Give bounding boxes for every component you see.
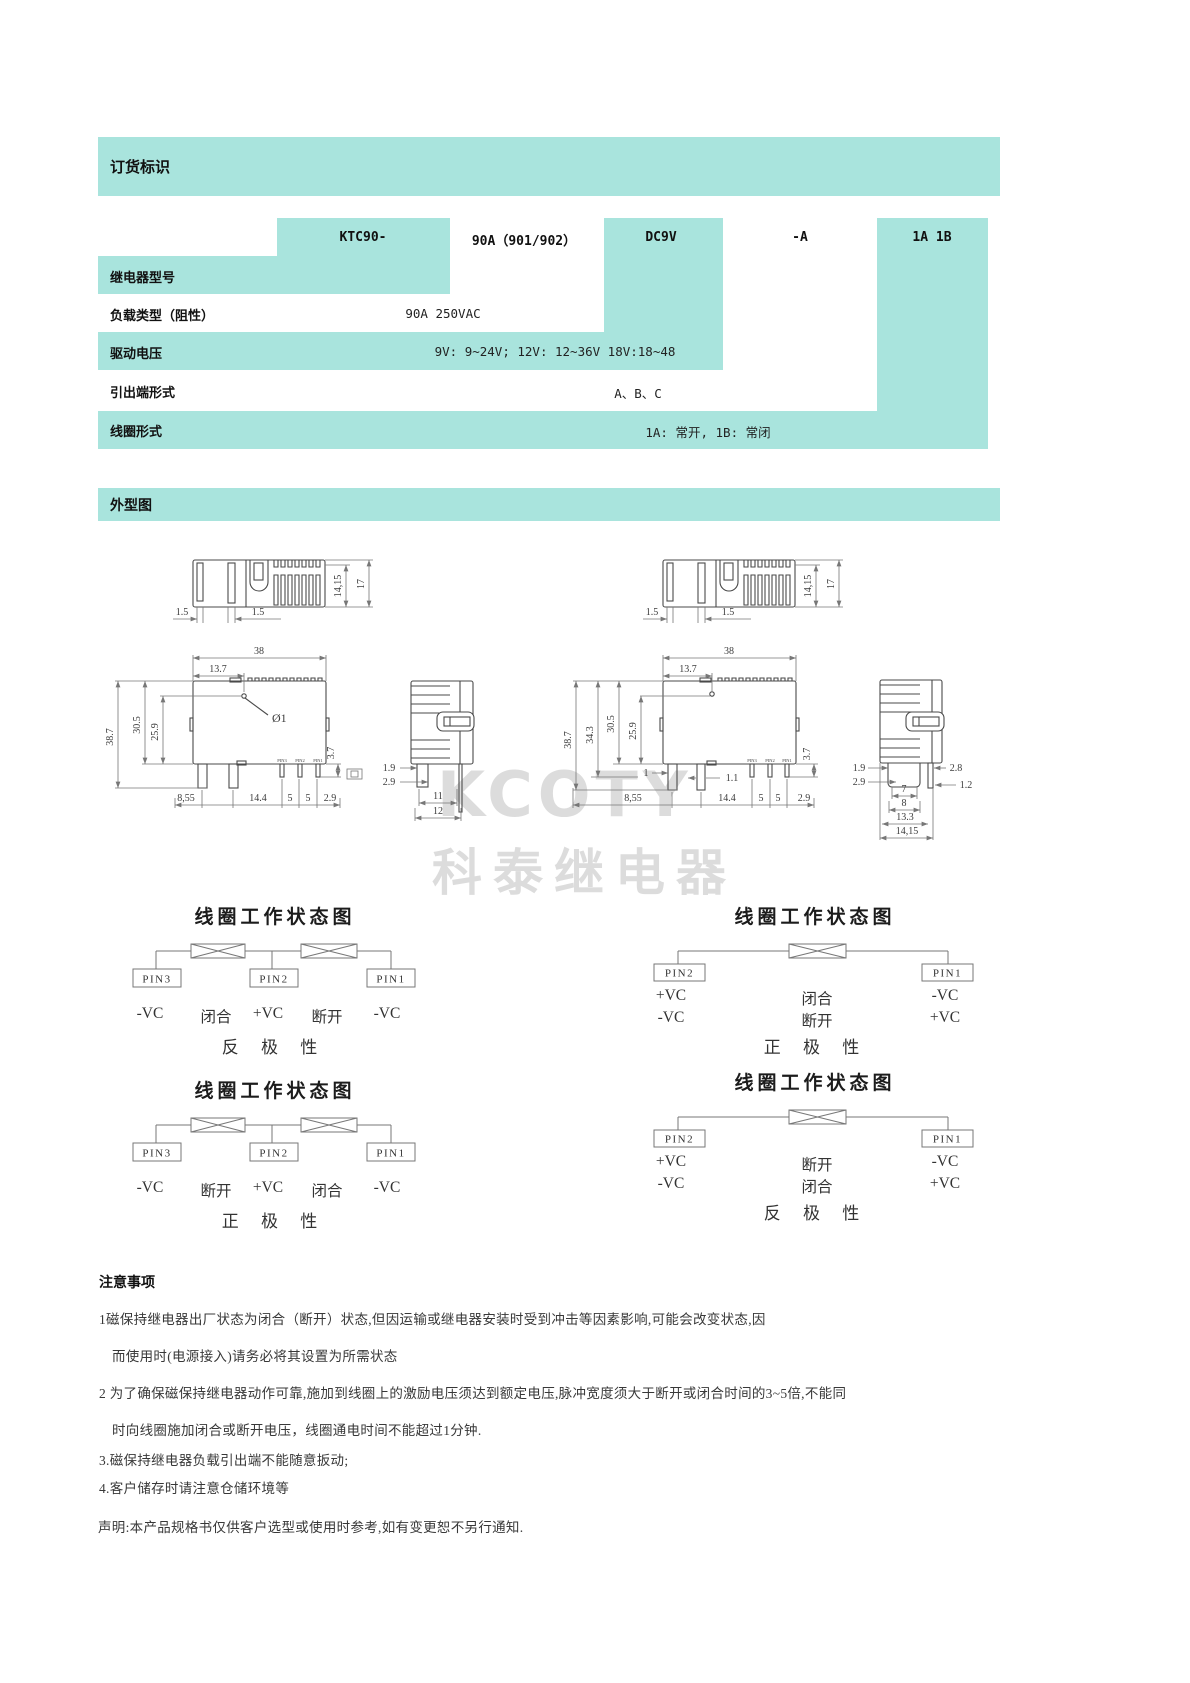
vc-label: +VC [930,1009,960,1027]
dim-lf-hole: Ø1 [272,711,287,725]
pin2-label: PIN2 [295,758,305,763]
vc-label: +VC [253,1179,283,1197]
dim-lf-b5: 2.9 [324,793,337,804]
pin-box-label: PIN2 [665,1134,694,1146]
dim-lf-b4: 5 [306,793,311,804]
note-line: 1磁保持继电器出厂状态为闭合（断开）状态,但因运输或继电器安装时受到冲击等因素影… [99,1308,766,1328]
row-label-coil: 线圈形式 [110,421,162,440]
vc-label: -VC [374,1179,401,1197]
row-value-terminal: A、B、C [614,383,662,402]
vc-label: -VC [137,1179,164,1197]
row-value-coil: 1A: 常开, 1B: 常闭 [645,422,770,441]
dim-rs-d1: 1.9 [853,763,866,774]
pin-box-label: PIN2 [259,1148,288,1160]
outline-title: 外型图 [110,495,152,515]
dim-rs-d4: 1.2 [960,780,973,791]
dim-rs-b2: 8 [902,798,907,809]
dim-lf-v2: 30.5 [132,716,143,734]
row-label-load: 负载类型（阻性） [110,305,214,324]
vc-label: -VC [658,1009,685,1027]
row-value-drive: 9V: 9~24V; 12V: 12~36V 18V:18~48 [435,344,676,359]
coil-diagram-2: 线圈工作状态图 PIN2 PIN1 +VC 闭合 -VC -VC 断开 +VC … [640,902,990,1060]
dim-lf-width: 38 [254,646,264,657]
pin-box-label: PIN3 [142,1148,171,1160]
state-label: 断开 [311,1005,342,1027]
note-line: 时向线圈施加闭合或断开电压，线圈通电时间不能超过1分钟. [112,1419,482,1439]
vc-label: +VC [656,987,686,1005]
state-label: 闭合 [200,1005,231,1027]
dim-ls-d1: 1.9 [383,763,396,774]
coil-circuit-3: PIN3 PIN2 PIN1 [120,1114,430,1166]
dim-lf-r1: 3.7 [326,747,337,760]
vc-label: -VC [932,987,959,1005]
coil-diagram-1-title: 线圈工作状态图 [120,902,430,929]
dim-rf-width: 38 [724,646,734,657]
row-label-terminal: 引出端形式 [110,382,175,401]
ordering-title: 订货标识 [110,156,170,177]
polarity-label: 反 极 性 [222,1033,327,1058]
datasheet-page: 订货标识 KTC90- 90A（901/902） DC9V -A 1A 1B 继… [0,0,1190,1683]
dim-rt-slot1: 1.5 [646,607,659,618]
pin1-label-right: PIN1 [782,758,792,763]
note-disclaimer: 声明:本产品规格书仅供客户选型或使用时参考,如有变更恕不另行通知. [98,1516,523,1536]
pin3-label-right: PIN3 [747,758,757,763]
coil-diagram-2-title: 线圈工作状态图 [640,902,990,929]
coil-circuit-4: PIN2 PIN1 [640,1106,990,1158]
col-coilform-band [877,218,988,411]
note-line: 而使用时(电源接入)请务必将其设置为所需状态 [112,1345,398,1365]
row-value-load: 90A 250VAC [405,306,480,321]
row-coil-band [98,411,988,449]
dim-rs-b4: 14,15 [896,826,919,837]
coil-diagram-3: 线圈工作状态图 PIN3 PIN2 PIN1 -VC 断开 +VC 闭合 -VC… [120,1076,430,1234]
coil-diagram-3-title: 线圈工作状态图 [120,1076,430,1103]
dim-rf-b5: 2.9 [798,793,811,804]
dim-rs-d3: 2.8 [950,763,963,774]
pin-box-label: PIN1 [933,1134,962,1146]
row-label-model: 继电器型号 [110,267,175,286]
pin3-label: PIN3 [277,758,287,763]
coil-diagram-4-title: 线圈工作状态图 [640,1068,990,1095]
dim-lt-slot1: 1.5 [176,607,189,618]
dim-rs-b3: 13.3 [896,812,914,823]
vc-label: -VC [658,1175,685,1193]
dim-rf-r1: 3.7 [802,748,813,761]
pin1-label: PIN1 [313,758,323,763]
state-label: 断开 [200,1179,231,1201]
note-line: 4.客户储存时请注意仓储环境等 [99,1477,289,1497]
dim-rf-v2: 34.3 [585,726,596,744]
state-label: 闭合 [311,1179,342,1201]
dim-rf-i1: 1 [644,768,649,779]
dim-rf-b4: 5 [776,793,781,804]
code-coilform: 1A 1B [912,230,951,245]
state-label: 断开 [801,1009,832,1031]
dim-lf-b1: 8,55 [177,793,195,804]
pin-box-label: PIN2 [665,968,694,980]
pin-box-label: PIN1 [376,1148,405,1160]
dim-rf-i2: 1.1 [726,773,739,784]
code-terminal: -A [792,230,808,245]
polarity-label: 反 极 性 [764,1199,869,1224]
dim-lf-holex: 13.7 [209,664,227,675]
pin2-label-right: PIN2 [765,758,775,763]
vc-label: +VC [253,1005,283,1023]
dim-rs-d2: 2.9 [853,777,866,788]
dim-rt-width: 14,15 [803,575,814,598]
vc-label: +VC [930,1175,960,1193]
dim-lf-b3: 5 [288,793,293,804]
dim-rf-holex: 13.7 [679,664,697,675]
code-load: 90A（901/902） [472,230,576,249]
dim-rf-b3: 5 [759,793,764,804]
dim-rf-v1: 38.7 [563,731,574,749]
vc-label: +VC [656,1153,686,1171]
state-label: 闭合 [801,987,832,1009]
code-series: KTC90- [340,230,387,245]
dim-ls-b2: 12 [433,806,443,817]
dim-ls-d2: 2.9 [383,777,396,788]
notes-title: 注意事项 [99,1272,155,1292]
dim-rt-slot2: 1.5 [722,607,735,618]
vc-label: -VC [374,1005,401,1023]
dim-lf-b2: 14.4 [249,793,267,804]
note-line: 3.磁保持继电器负载引出端不能随意扳动; [99,1449,348,1469]
dim-rf-b2: 14.4 [718,793,736,804]
dim-lf-v1: 38.7 [105,728,116,746]
polarity-label: 正 极 性 [222,1207,327,1232]
state-label: 闭合 [801,1175,832,1197]
row-label-drive: 驱动电压 [110,343,162,362]
dim-lf-v3: 25.9 [150,723,161,741]
pin-box-label: PIN3 [142,974,171,986]
vc-label: -VC [932,1153,959,1171]
polarity-label: 正 极 性 [764,1033,869,1058]
state-label: 断开 [801,1153,832,1175]
coil-diagram-4: 线圈工作状态图 PIN2 PIN1 +VC 断开 -VC -VC 闭合 +VC … [640,1068,990,1226]
code-voltage: DC9V [645,230,676,245]
dim-rt-height: 17 [826,579,837,589]
dim-rf-v3: 30.5 [606,715,617,733]
outline-drawings: 14,15 17 1.5 1.5 [98,515,988,915]
pin-box-label: PIN2 [259,974,288,986]
dim-ls-b1: 11 [433,791,443,802]
dim-rf-v4: 25.9 [628,722,639,740]
pin-box-label: PIN1 [933,968,962,980]
note-line: 2 为了确保磁保持继电器动作可靠,施加到线圈上的激励电压须达到额定电压,脉冲宽度… [99,1382,846,1402]
coil-diagram-1: 线圈工作状态图 PIN3 PIN2 PIN1 -VC 闭合 +VC 断开 -VC… [120,902,430,1060]
dim-lt-height: 17 [356,579,367,589]
coil-circuit-1: PIN3 PIN2 PIN1 [120,940,430,992]
dim-lt-slot2: 1.5 [252,607,265,618]
pin-box-label: PIN1 [376,974,405,986]
dim-lt-width: 14,15 [333,575,344,598]
dim-rs-b1: 7 [902,784,907,795]
coil-circuit-2: PIN2 PIN1 [640,940,990,992]
vc-label: -VC [137,1005,164,1023]
dim-rf-b1: 8,55 [624,793,642,804]
ordering-section-header: 订货标识 [98,137,1000,196]
